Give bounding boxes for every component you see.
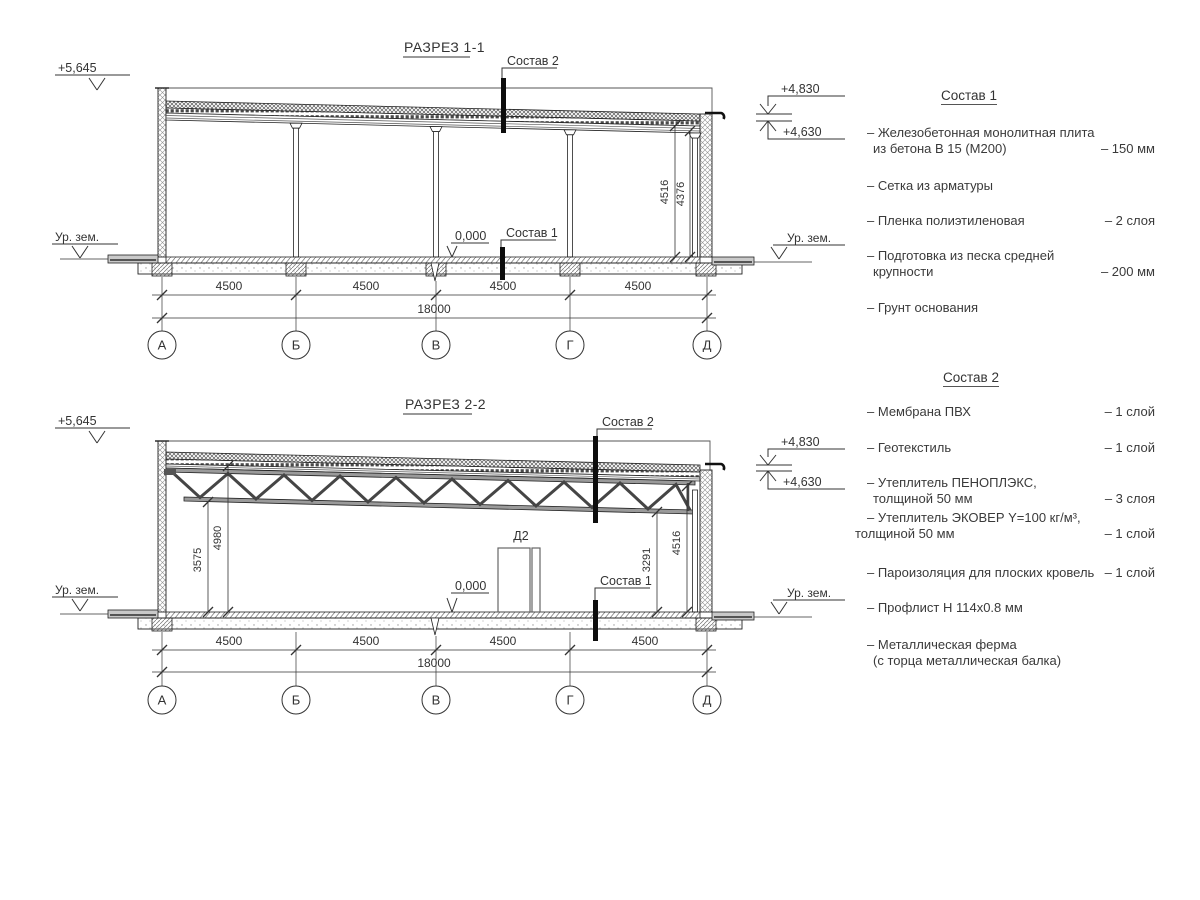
svg-text:Состав 2: Состав 2 <box>507 54 559 68</box>
elevation-mark-roof-bottom: +4,630 <box>760 121 845 139</box>
svg-text:В: В <box>432 338 441 353</box>
section1-title: РАЗРЕЗ 1-1 <box>404 39 485 55</box>
floor-slab <box>108 610 754 635</box>
ground-level-mark-left: Ур. зем. <box>52 230 118 258</box>
svg-text:Ур. зем.: Ур. зем. <box>787 231 831 245</box>
elevation-mark-roof-top: +4,830 <box>756 435 845 471</box>
svg-text:4980: 4980 <box>212 526 224 550</box>
total-dim: 18000 <box>417 302 451 316</box>
svg-text:Б: Б <box>292 338 301 353</box>
axis-bubble-v: В <box>422 331 450 359</box>
bay-dim: 4500 <box>625 279 652 293</box>
svg-text:3291: 3291 <box>641 548 653 572</box>
footing <box>152 618 172 631</box>
list-item: – Металлическая ферма (с торца металличе… <box>867 637 1175 669</box>
svg-text:4376: 4376 <box>675 182 687 206</box>
svg-text:Состав 2: Состав 2 <box>602 415 654 429</box>
axis-bubble-g: Г <box>556 686 584 714</box>
elevation-mark-parapet: +5,645 <box>55 61 130 90</box>
truss-bottom-chord <box>184 497 693 514</box>
svg-text:3575: 3575 <box>192 548 204 572</box>
composition-2-title: Состав 2 <box>943 370 999 387</box>
callout-floor-composition: Состав 1 <box>593 574 652 641</box>
roof-edge-hook <box>705 464 724 470</box>
svg-text:Состав 1: Состав 1 <box>600 574 652 588</box>
svg-text:Д: Д <box>703 338 712 353</box>
composition-1-title: Состав 1 <box>941 88 997 105</box>
bay-dim: 4500 <box>632 634 659 648</box>
list-item: – Железобетонная монолитная плита из бет… <box>867 125 1175 157</box>
footing <box>152 263 172 276</box>
vertical-dimension-3575: 3575 <box>192 497 213 617</box>
svg-text:4516: 4516 <box>659 180 671 204</box>
section-cut-bar <box>500 247 505 280</box>
zero-level-mark: 0,000 <box>447 229 489 257</box>
composition-1-list: Состав 1 – Железобетонная монолитная пли… <box>855 88 1175 348</box>
footing <box>560 263 580 276</box>
svg-text:Г: Г <box>566 338 573 353</box>
bay-dim: 4500 <box>216 634 243 648</box>
list-item: – Сетка из арматуры <box>867 178 1175 194</box>
axis-bubble-a: А <box>148 331 176 359</box>
truss-support <box>164 469 176 475</box>
svg-text:+5,645: +5,645 <box>58 61 97 75</box>
column-axis-g <box>564 130 576 257</box>
vertical-dimension-3291: 3291 <box>641 507 662 617</box>
elevation-mark-roof-top: +4,830 <box>756 82 845 121</box>
list-item: – Подготовка из песка средней крупности … <box>867 248 1175 280</box>
drawing-sheet: { "section1": { "title": "РАЗРЕЗ 1-1", "… <box>0 0 1200 900</box>
axis-bubble-g: Г <box>556 331 584 359</box>
ground-level-mark-left: Ур. зем. <box>52 583 118 611</box>
axis-bubble-d: Д <box>693 331 721 359</box>
right-wall <box>693 470 713 612</box>
bay-dim: 4500 <box>353 279 380 293</box>
svg-text:+4,830: +4,830 <box>781 435 820 449</box>
axis-bubble-b: Б <box>282 331 310 359</box>
column-axis-d <box>693 138 698 257</box>
list-item: – Утеплитель ПЕНОПЛЭКС, толщиной 50 мм –… <box>867 475 1175 507</box>
composition-2-list: Состав 2 – Мембрана ПВХ – 1 слой – Геоте… <box>855 370 1175 670</box>
footing <box>286 263 306 276</box>
roof-assembly <box>166 101 724 133</box>
axis-bubble-b: Б <box>282 686 310 714</box>
vertical-dimension-4376: 4376 <box>675 126 695 262</box>
section-1-1-drawing: РАЗРЕЗ 1-1 <box>52 39 845 359</box>
ground-level-mark-right: Ур. зем. <box>771 586 845 614</box>
svg-text:4516: 4516 <box>671 531 683 555</box>
list-item: – Мембрана ПВХ – 1 слой <box>867 404 1175 420</box>
svg-text:Состав 1: Состав 1 <box>506 226 558 240</box>
svg-text:Ур. зем.: Ур. зем. <box>787 586 831 600</box>
bay-dim: 4500 <box>490 279 517 293</box>
svg-text:0,000: 0,000 <box>455 579 486 593</box>
bay-dim: 4500 <box>216 279 243 293</box>
section-cut-bar <box>501 78 506 133</box>
column-axis-b <box>290 123 302 257</box>
section-2-2-drawing: РАЗРЕЗ 2-2 <box>52 396 845 714</box>
right-wall <box>689 114 712 257</box>
section-cut-bar <box>593 436 598 523</box>
axis-bubble-v: В <box>422 686 450 714</box>
door-label: Д2 <box>513 529 528 543</box>
list-item: – Пленка полиэтиленовая – 2 слоя <box>867 213 1175 229</box>
svg-text:Ур. зем.: Ур. зем. <box>55 583 99 597</box>
svg-text:А: А <box>158 693 167 708</box>
floor-slab <box>108 255 754 281</box>
elevation-mark-roof-bottom: +4,630 <box>760 471 845 489</box>
list-item: – Геотекстиль – 1 слой <box>867 440 1175 456</box>
svg-text:+4,630: +4,630 <box>783 125 822 139</box>
column-axis-d <box>693 490 698 612</box>
list-item: – Профлист Н 114х0.8 мм <box>867 600 1175 616</box>
svg-text:В: В <box>432 693 441 708</box>
svg-text:0,000: 0,000 <box>455 229 486 243</box>
bay-dim: 4500 <box>353 634 380 648</box>
section-cut-bar <box>593 600 598 641</box>
list-item: – Утеплитель ЭКОВЕР Y=100 кг/м³, толщино… <box>867 510 1175 542</box>
column-axis-v <box>430 127 442 257</box>
list-item: – Грунт основания <box>867 300 1175 316</box>
bay-dim: 4500 <box>490 634 517 648</box>
total-dim: 18000 <box>417 656 451 670</box>
ground-level-mark-right: Ур. зем. <box>771 231 845 259</box>
axis-bubble-a: А <box>148 686 176 714</box>
axis-bubble-d: Д <box>693 686 721 714</box>
door-d2: Д2 <box>498 529 540 612</box>
svg-text:Г: Г <box>566 693 573 708</box>
svg-text:Б: Б <box>292 693 301 708</box>
zero-level-mark: 0,000 <box>447 579 489 612</box>
svg-text:+4,630: +4,630 <box>783 475 822 489</box>
list-item: – Пароизоляция для плоских кровель – 1 с… <box>867 565 1175 581</box>
svg-text:А: А <box>158 338 167 353</box>
section2-title: РАЗРЕЗ 2-2 <box>405 396 486 412</box>
elevation-mark-parapet: +5,645 <box>55 414 130 443</box>
svg-text:+5,645: +5,645 <box>58 414 97 428</box>
svg-text:Ур. зем.: Ур. зем. <box>55 230 99 244</box>
svg-text:Д: Д <box>703 693 712 708</box>
svg-text:+4,830: +4,830 <box>781 82 820 96</box>
